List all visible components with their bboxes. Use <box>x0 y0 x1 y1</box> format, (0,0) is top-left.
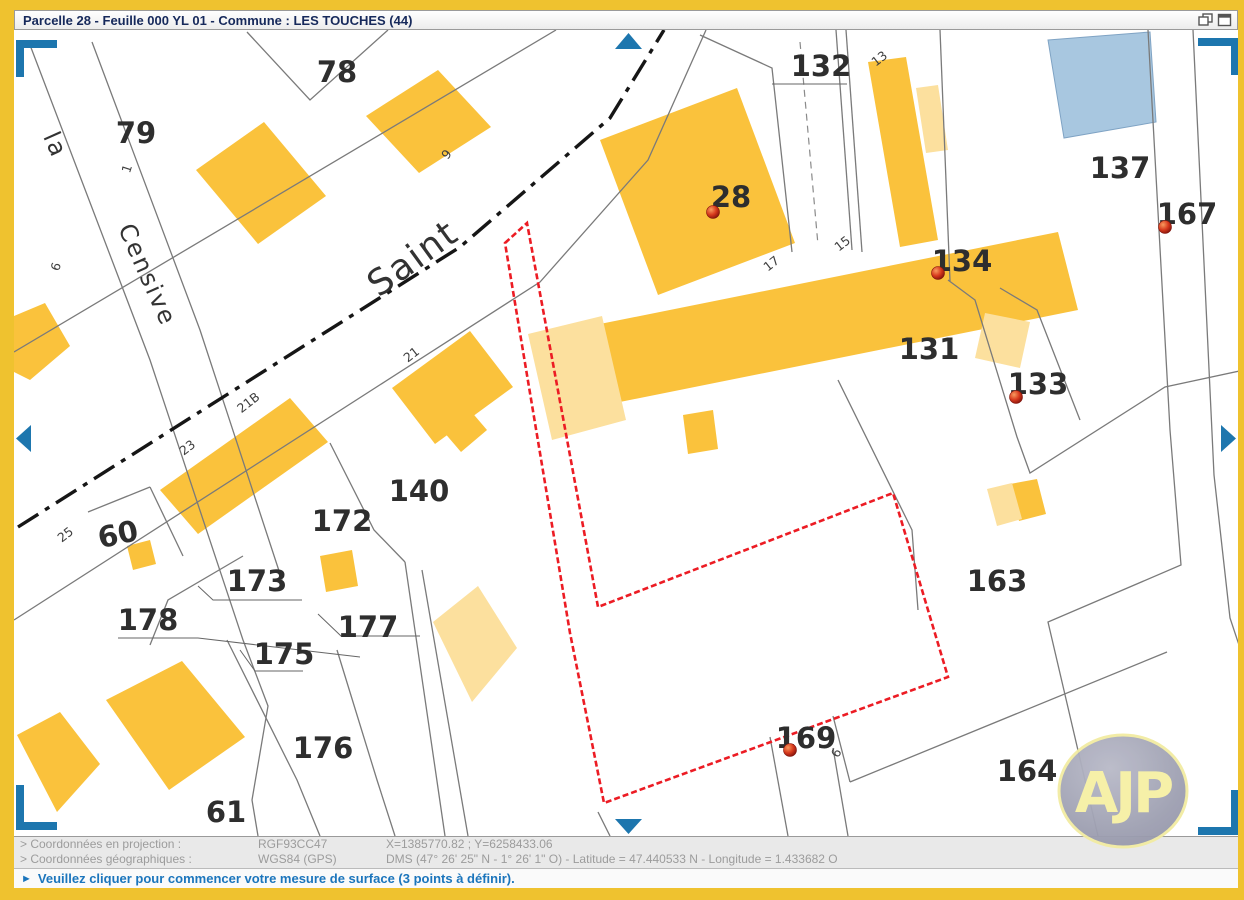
status-row-geographic: > Coordonnées géographiques : WGS84 (GPS… <box>14 852 1238 867</box>
blue-building <box>1048 32 1156 138</box>
street-name-saint: Saint <box>360 212 467 305</box>
restore-window-icon[interactable] <box>1198 13 1214 27</box>
parcel-label-177: 177 <box>338 610 399 644</box>
parcel-marker-dot-169 <box>784 744 797 757</box>
corner-bracket-top-left <box>16 40 57 77</box>
pan-up-arrow[interactable] <box>615 33 642 49</box>
house-number-25: 25 <box>54 524 76 546</box>
house-number-15: 15 <box>831 233 853 255</box>
building <box>14 303 70 380</box>
parcel-marker-dot-28 <box>707 206 720 219</box>
parcel-marker-dot-134 <box>932 267 945 280</box>
status-system: RGF93CC47 <box>258 837 386 852</box>
pan-down-arrow[interactable] <box>615 819 642 834</box>
status-system: WGS84 (GPS) <box>258 852 386 867</box>
house-number-6: 6 <box>47 260 64 272</box>
logo-text: AJP <box>1075 761 1172 826</box>
instruction-message-bar: ► Veuillez cliquer pour commencer votre … <box>14 868 1238 888</box>
parcel-label-163: 163 <box>967 564 1028 598</box>
ajp-logo: AJP <box>1056 731 1190 858</box>
coordinates-status-bar: > Coordonnées en projection : RGF93CC47 … <box>14 836 1238 868</box>
house-number-1: 1 <box>118 163 135 175</box>
parcel-label-164: 164 <box>997 754 1058 788</box>
cadastre-map-canvas[interactable]: SaintlaCensive78791322813716713413113314… <box>14 30 1238 836</box>
parcel-label-137: 137 <box>1090 151 1151 185</box>
parcel-label-79: 79 <box>116 116 156 150</box>
title-bar: Parcelle 28 - Feuille 000 YL 01 - Commun… <box>14 10 1238 30</box>
building <box>196 122 326 244</box>
parcel-label-132: 132 <box>791 49 852 83</box>
building <box>366 70 491 173</box>
house-number-21b: 21B <box>234 389 263 416</box>
house-number-21: 21 <box>400 344 422 366</box>
parcel-label-172: 172 <box>312 504 373 538</box>
light-building <box>975 313 1030 368</box>
maximize-window-icon[interactable] <box>1217 13 1233 27</box>
pan-left-arrow[interactable] <box>16 425 31 452</box>
parcel-label-175: 175 <box>254 637 315 671</box>
street-name-la: la <box>37 127 73 162</box>
status-row-projection: > Coordonnées en projection : RGF93CC47 … <box>14 837 1238 852</box>
window-title: Parcelle 28 - Feuille 000 YL 01 - Commun… <box>23 13 412 28</box>
parcel-marker-dot-167 <box>1159 221 1172 234</box>
pan-right-arrow[interactable] <box>1221 425 1236 452</box>
status-label: > Coordonnées géographiques : <box>20 852 258 867</box>
house-number-23: 23 <box>176 437 198 459</box>
corner-bracket-top-right <box>1198 38 1238 75</box>
play-arrow-icon: ► <box>21 873 32 885</box>
corner-bracket-bottom-right <box>1198 790 1238 835</box>
parcel-marker-dot-133 <box>1010 391 1023 404</box>
building <box>17 712 100 812</box>
house-number-17: 17 <box>760 253 782 275</box>
building <box>683 410 718 454</box>
window-controls <box>1198 13 1233 27</box>
light-building <box>433 586 517 702</box>
parcel-label-178: 178 <box>118 603 179 637</box>
instruction-text: Veuillez cliquer pour commencer votre me… <box>38 871 515 886</box>
parcel-label-78: 78 <box>317 55 357 89</box>
building <box>106 661 245 790</box>
parcel-label-61: 61 <box>206 795 246 829</box>
building <box>320 550 358 592</box>
parcel-label-176: 176 <box>293 731 354 765</box>
parcel-label-173: 173 <box>227 564 288 598</box>
parcel-label-140: 140 <box>389 474 450 508</box>
status-label: > Coordonnées en projection : <box>20 837 258 852</box>
street-name-censive: Censive <box>112 219 182 330</box>
parcel-label-131: 131 <box>899 332 960 366</box>
